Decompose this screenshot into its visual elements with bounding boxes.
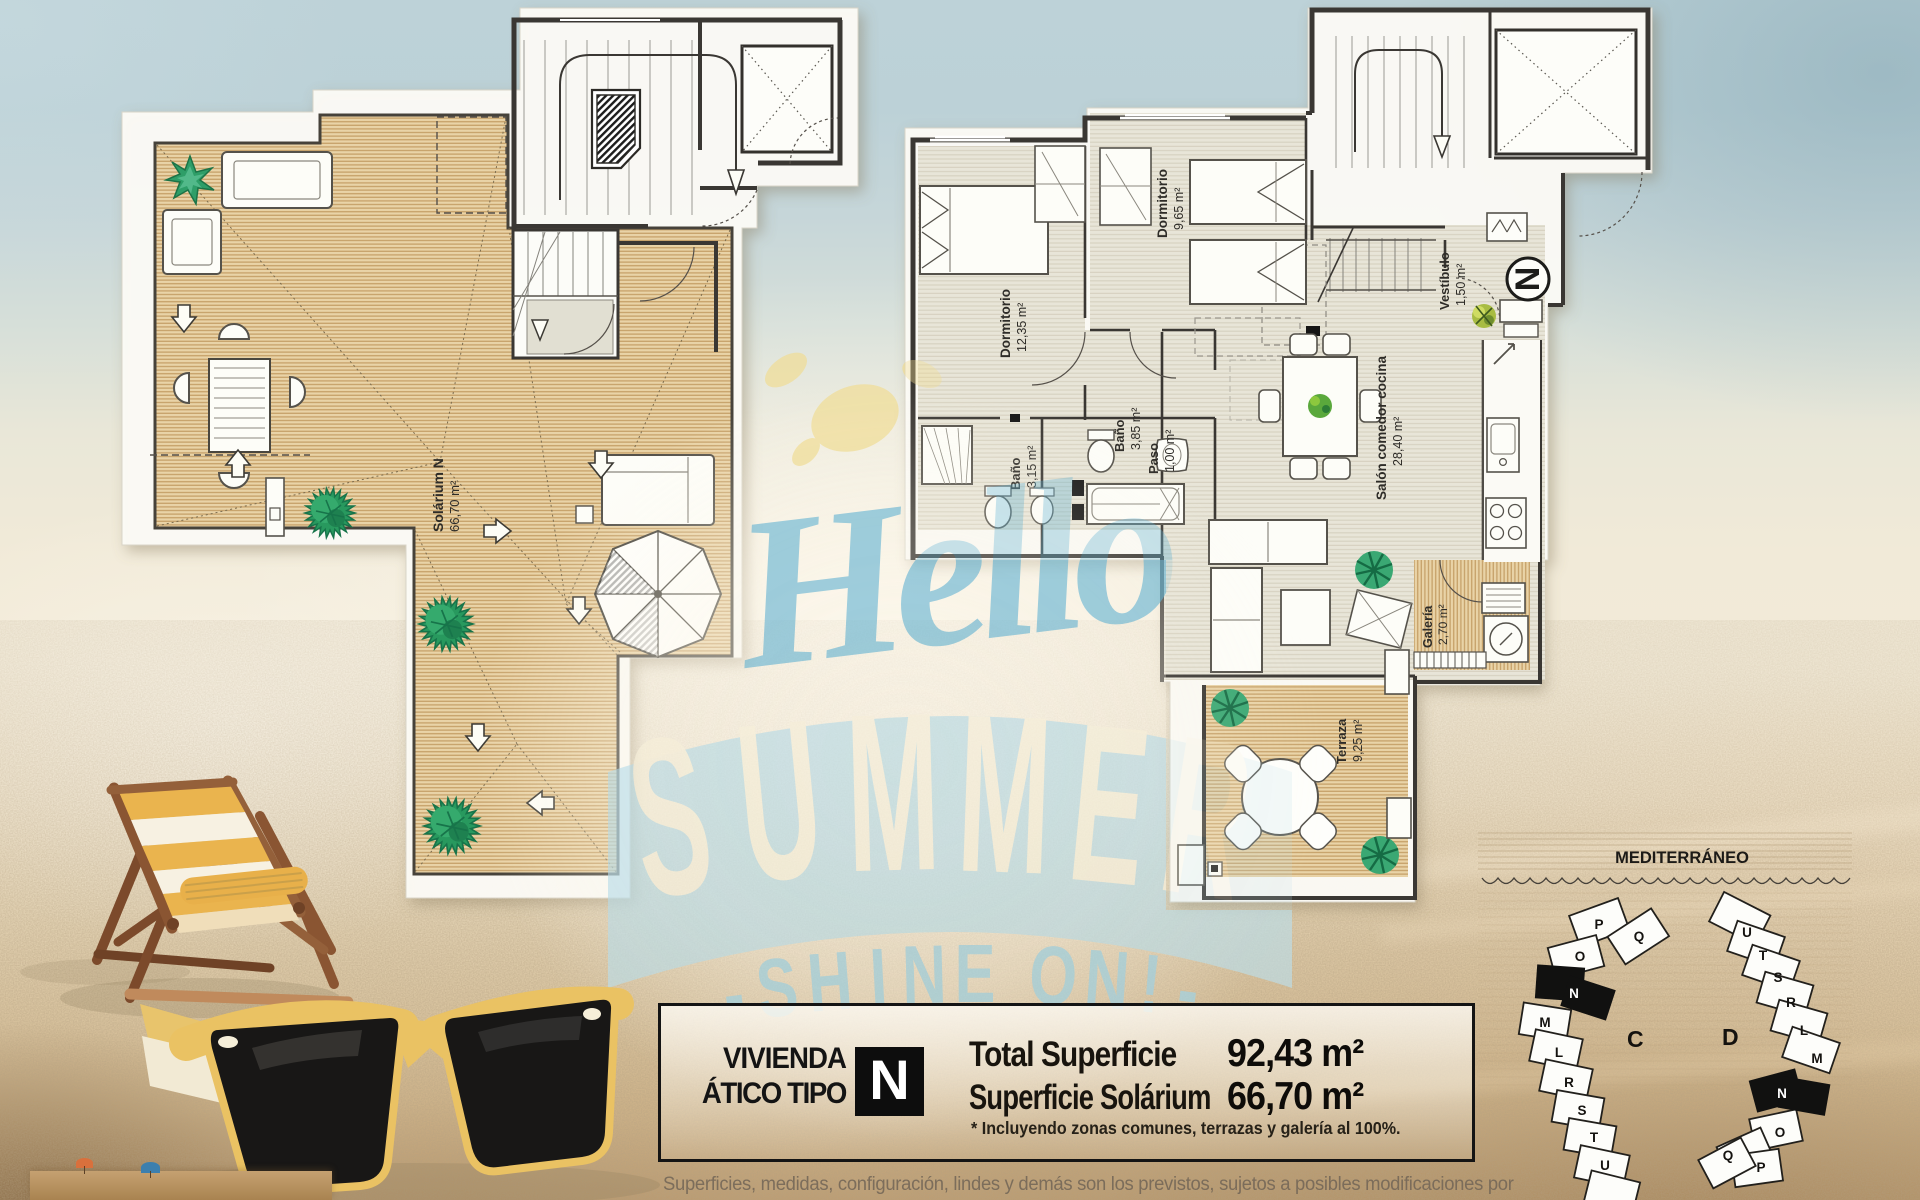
svg-text:P: P	[1756, 1160, 1765, 1175]
svg-text:D: D	[1722, 1024, 1739, 1050]
svg-text:M: M	[1539, 1015, 1550, 1030]
svg-text:O: O	[1775, 1125, 1786, 1140]
svg-text:T: T	[1590, 1130, 1599, 1145]
svg-text:S: S	[1577, 1103, 1586, 1118]
svg-text:P: P	[1594, 917, 1603, 932]
svg-text:N: N	[1777, 1086, 1787, 1101]
svg-text:L: L	[1800, 1023, 1808, 1038]
svg-text:T: T	[1759, 948, 1768, 963]
svg-text:L: L	[1555, 1045, 1563, 1060]
svg-text:N: N	[1569, 986, 1579, 1001]
svg-text:U: U	[1742, 925, 1752, 940]
svg-text:Q: Q	[1634, 929, 1645, 944]
svg-text:MEDITERRÁNEO: MEDITERRÁNEO	[1615, 848, 1749, 867]
svg-text:C: C	[1627, 1026, 1644, 1052]
svg-text:S: S	[1773, 970, 1782, 985]
svg-text:Q: Q	[1723, 1148, 1734, 1163]
svg-text:U: U	[1600, 1158, 1610, 1173]
svg-text:O: O	[1575, 949, 1586, 964]
svg-text:R: R	[1564, 1075, 1574, 1090]
svg-text:R: R	[1786, 995, 1796, 1010]
svg-text:M: M	[1811, 1051, 1822, 1066]
